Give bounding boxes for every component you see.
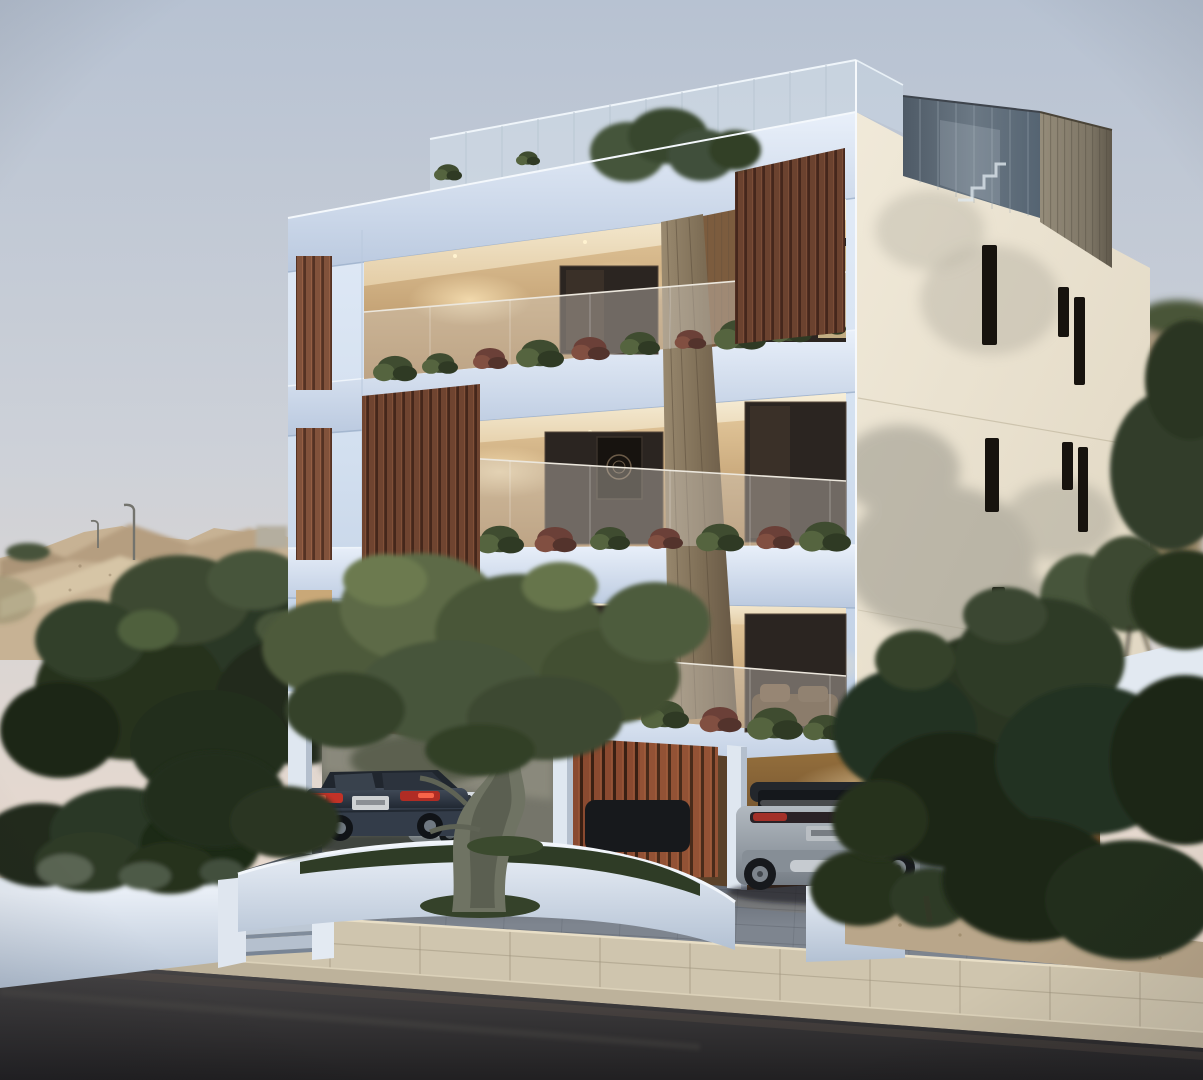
architectural-render xyxy=(0,0,1203,1080)
vignette xyxy=(0,0,1203,1080)
